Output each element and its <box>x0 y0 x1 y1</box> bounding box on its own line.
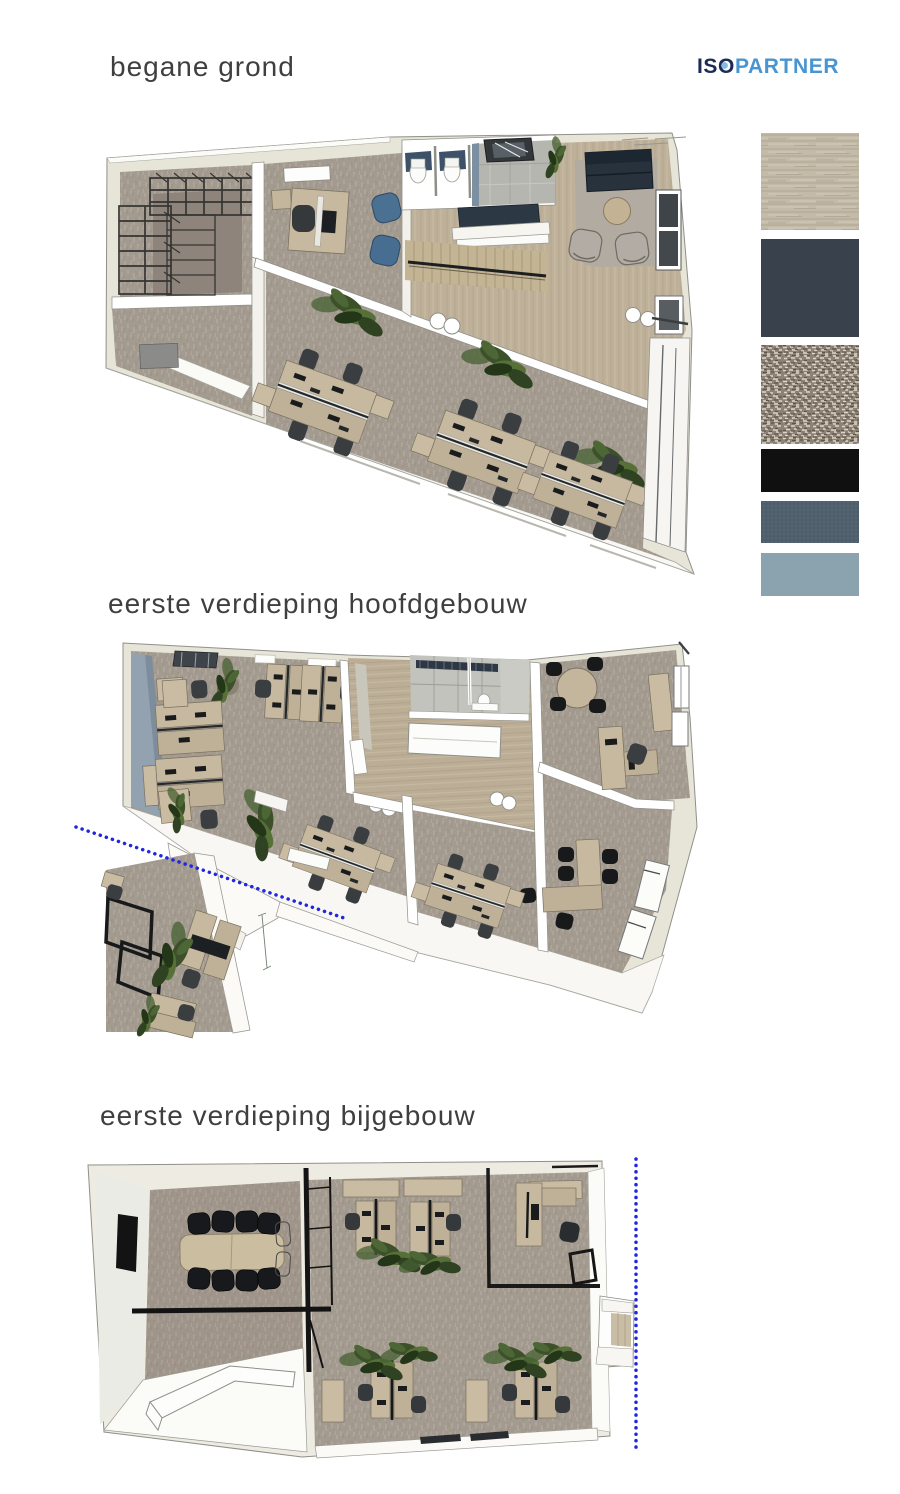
svg-text:eerste verdieping bijgebouw: eerste verdieping bijgebouw <box>100 1100 476 1131</box>
svg-text:ISOPARTNER: ISOPARTNER <box>697 55 839 78</box>
svg-text:eerste verdieping hoofdgebouw: eerste verdieping hoofdgebouw <box>108 588 528 619</box>
svg-text:begane grond: begane grond <box>110 51 295 82</box>
